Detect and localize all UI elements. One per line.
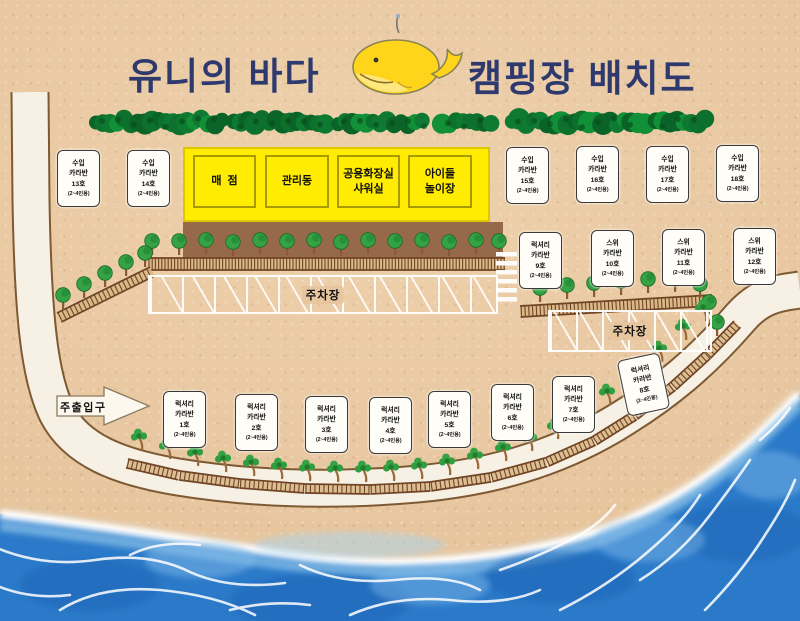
caravan-number: 10호: [606, 260, 620, 271]
caravan-type: 럭셔리: [381, 406, 400, 417]
caravan-type: 수입: [731, 154, 744, 165]
caravan-number: 13호: [72, 180, 86, 191]
caravan-capacity: (2~4인용): [316, 436, 338, 444]
campground-map: 유니의 바다 캠핑장 배치도 매 점 관리동 공용화장실 샤워실 아이들 놀이장: [0, 0, 800, 621]
caravan-name: 카라반: [139, 169, 158, 180]
caravan-number: 3호: [321, 426, 331, 437]
caravan-number: 14호: [142, 180, 156, 191]
caravan-type: 럭셔리: [503, 393, 522, 404]
parking-label: 주차장: [609, 322, 652, 340]
caravan-capacity: (2~4인용): [174, 431, 196, 439]
building-label: 공용화장실: [343, 167, 394, 181]
caravan-card-12호: 스위카라반12호(2~4인용): [733, 228, 776, 285]
building-restroom-shower: 공용화장실 샤워실: [337, 155, 400, 208]
caravan-card-15호: 수입카라반15호(2~4인용): [506, 147, 549, 204]
caravan-type: 럭셔리: [440, 400, 459, 411]
facilities-block: 매 점 관리동 공용화장실 샤워실 아이들 놀이장: [183, 147, 490, 222]
caravan-name: 카라반: [503, 403, 522, 414]
map-title-right: 캠핑장 배치도: [468, 48, 697, 102]
caravan-type: 수입: [591, 155, 604, 166]
caravan-type: 스위: [606, 239, 619, 250]
caravan-capacity: (2~4인용): [380, 437, 402, 445]
caravan-capacity: (2~4인용): [439, 431, 461, 439]
whale-icon: [346, 12, 464, 108]
caravan-type: 수입: [661, 155, 674, 166]
parking-lot-east: 주차장: [548, 310, 712, 352]
caravan-capacity: (2~4인용): [673, 269, 695, 277]
caravan-name: 카라반: [175, 410, 194, 421]
caravan-type: 스위: [748, 237, 761, 248]
caravan-name: 카라반: [674, 248, 693, 259]
caravan-name: 카라반: [564, 395, 583, 406]
caravan-capacity: (2~4인용): [744, 268, 766, 276]
caravan-card-14호: 수입카라반14호(2~4인용): [127, 150, 170, 207]
caravan-name: 카라반: [317, 415, 336, 426]
caravan-type: 수입: [72, 159, 85, 170]
building-label: 놀이장: [425, 182, 455, 196]
caravan-capacity: (2~4인용): [587, 186, 609, 194]
caravan-card-11호: 스위카라반11호(2~4인용): [662, 229, 705, 286]
crosswalk: [496, 252, 517, 302]
caravan-number: 12호: [748, 258, 762, 269]
caravan-name: 카라반: [440, 410, 459, 421]
caravan-card-6호: 럭셔리카라반6호(2~4인용): [491, 384, 534, 441]
caravan-number: 4호: [385, 427, 395, 438]
caravan-card-7호: 럭셔리카라반7호(2~4인용): [552, 376, 595, 433]
caravan-type: 럭셔리: [175, 400, 194, 411]
caravan-number: 15호: [521, 177, 535, 188]
caravan-number: 11호: [677, 259, 690, 270]
caravan-card-2호: 럭셔리카라반2호(2~4인용): [235, 394, 278, 451]
parking-lot-main: 주차장: [148, 275, 498, 314]
caravan-card-3호: 럭셔리카라반3호(2~4인용): [305, 396, 348, 453]
caravan-number: 17호: [661, 176, 675, 187]
caravan-card-4호: 럭셔리카라반4호(2~4인용): [369, 397, 412, 454]
caravan-capacity: (2~4인용): [657, 186, 679, 194]
caravan-capacity: (2~4인용): [68, 190, 90, 198]
caravan-name: 카라반: [381, 416, 400, 427]
map-title-left: 유니의 바다: [128, 46, 320, 100]
caravan-capacity: (2~4인용): [138, 190, 160, 198]
caravan-name: 카라반: [588, 165, 607, 176]
caravan-name: 카라반: [69, 169, 88, 180]
caravan-card-13호: 수입카라반13호(2~4인용): [57, 150, 100, 207]
building-store: 매 점: [193, 155, 256, 208]
caravan-capacity: (2~4인용): [563, 416, 585, 424]
caravan-capacity: (2~4인용): [727, 185, 749, 193]
caravan-name: 카라반: [518, 166, 537, 177]
parking-label: 주차장: [302, 286, 345, 304]
caravan-type: 럭셔리: [564, 385, 583, 396]
caravan-card-17호: 수입카라반17호(2~4인용): [646, 146, 689, 203]
caravan-name: 카라반: [603, 249, 622, 260]
caravan-number: 1호: [179, 421, 189, 432]
caravan-number: 18호: [731, 175, 745, 186]
caravan-card-18호: 수입카라반18호(2~4인용): [716, 145, 759, 202]
caravan-capacity: (2~4인용): [530, 272, 552, 280]
caravan-name: 카라반: [658, 165, 677, 176]
caravan-capacity: (2~4인용): [517, 187, 539, 195]
caravan-number: 9호: [535, 262, 545, 273]
caravan-card-16호: 수입카라반16호(2~4인용): [576, 146, 619, 203]
caravan-card-9호: 럭셔리카라반9호(2~4인용): [519, 232, 562, 289]
caravan-name: 카라반: [531, 251, 550, 262]
caravan-card-5호: 럭셔리카라반5호(2~4인용): [428, 391, 471, 448]
caravan-number: 6호: [507, 414, 517, 425]
caravan-capacity: (2~4인용): [502, 424, 524, 432]
caravan-name: 카라반: [728, 164, 747, 175]
caravan-type: 수입: [142, 159, 155, 170]
caravan-type: 수입: [521, 156, 534, 167]
building-label: 관리동: [282, 174, 312, 188]
caravan-type: 스위: [677, 238, 690, 249]
caravan-card-10호: 스위카라반10호(2~4인용): [591, 230, 634, 287]
caravan-type: 럭셔리: [317, 405, 336, 416]
caravan-name: 카라반: [745, 247, 764, 258]
caravan-card-1호: 럭셔리카라반1호(2~4인용): [163, 391, 206, 448]
caravan-capacity: (2~4인용): [635, 394, 658, 406]
caravan-capacity: (2~4인용): [246, 434, 268, 442]
caravan-capacity: (2~4인용): [602, 270, 624, 278]
caravan-number: 7호: [568, 406, 578, 417]
caravan-name: 카라반: [247, 413, 266, 424]
entrance-label: 주출입구: [60, 399, 106, 415]
building-label: 아이들: [425, 167, 455, 181]
caravan-number: 16호: [591, 176, 605, 187]
caravan-number: 5호: [444, 421, 454, 432]
building-label: 매 점: [211, 174, 237, 188]
caravan-number: 2호: [251, 424, 261, 435]
building-playground: 아이들 놀이장: [408, 155, 472, 208]
building-label: 샤워실: [353, 182, 383, 196]
caravan-type: 럭셔리: [531, 241, 550, 252]
building-office: 관리동: [265, 155, 329, 208]
caravan-type: 럭셔리: [247, 403, 266, 414]
